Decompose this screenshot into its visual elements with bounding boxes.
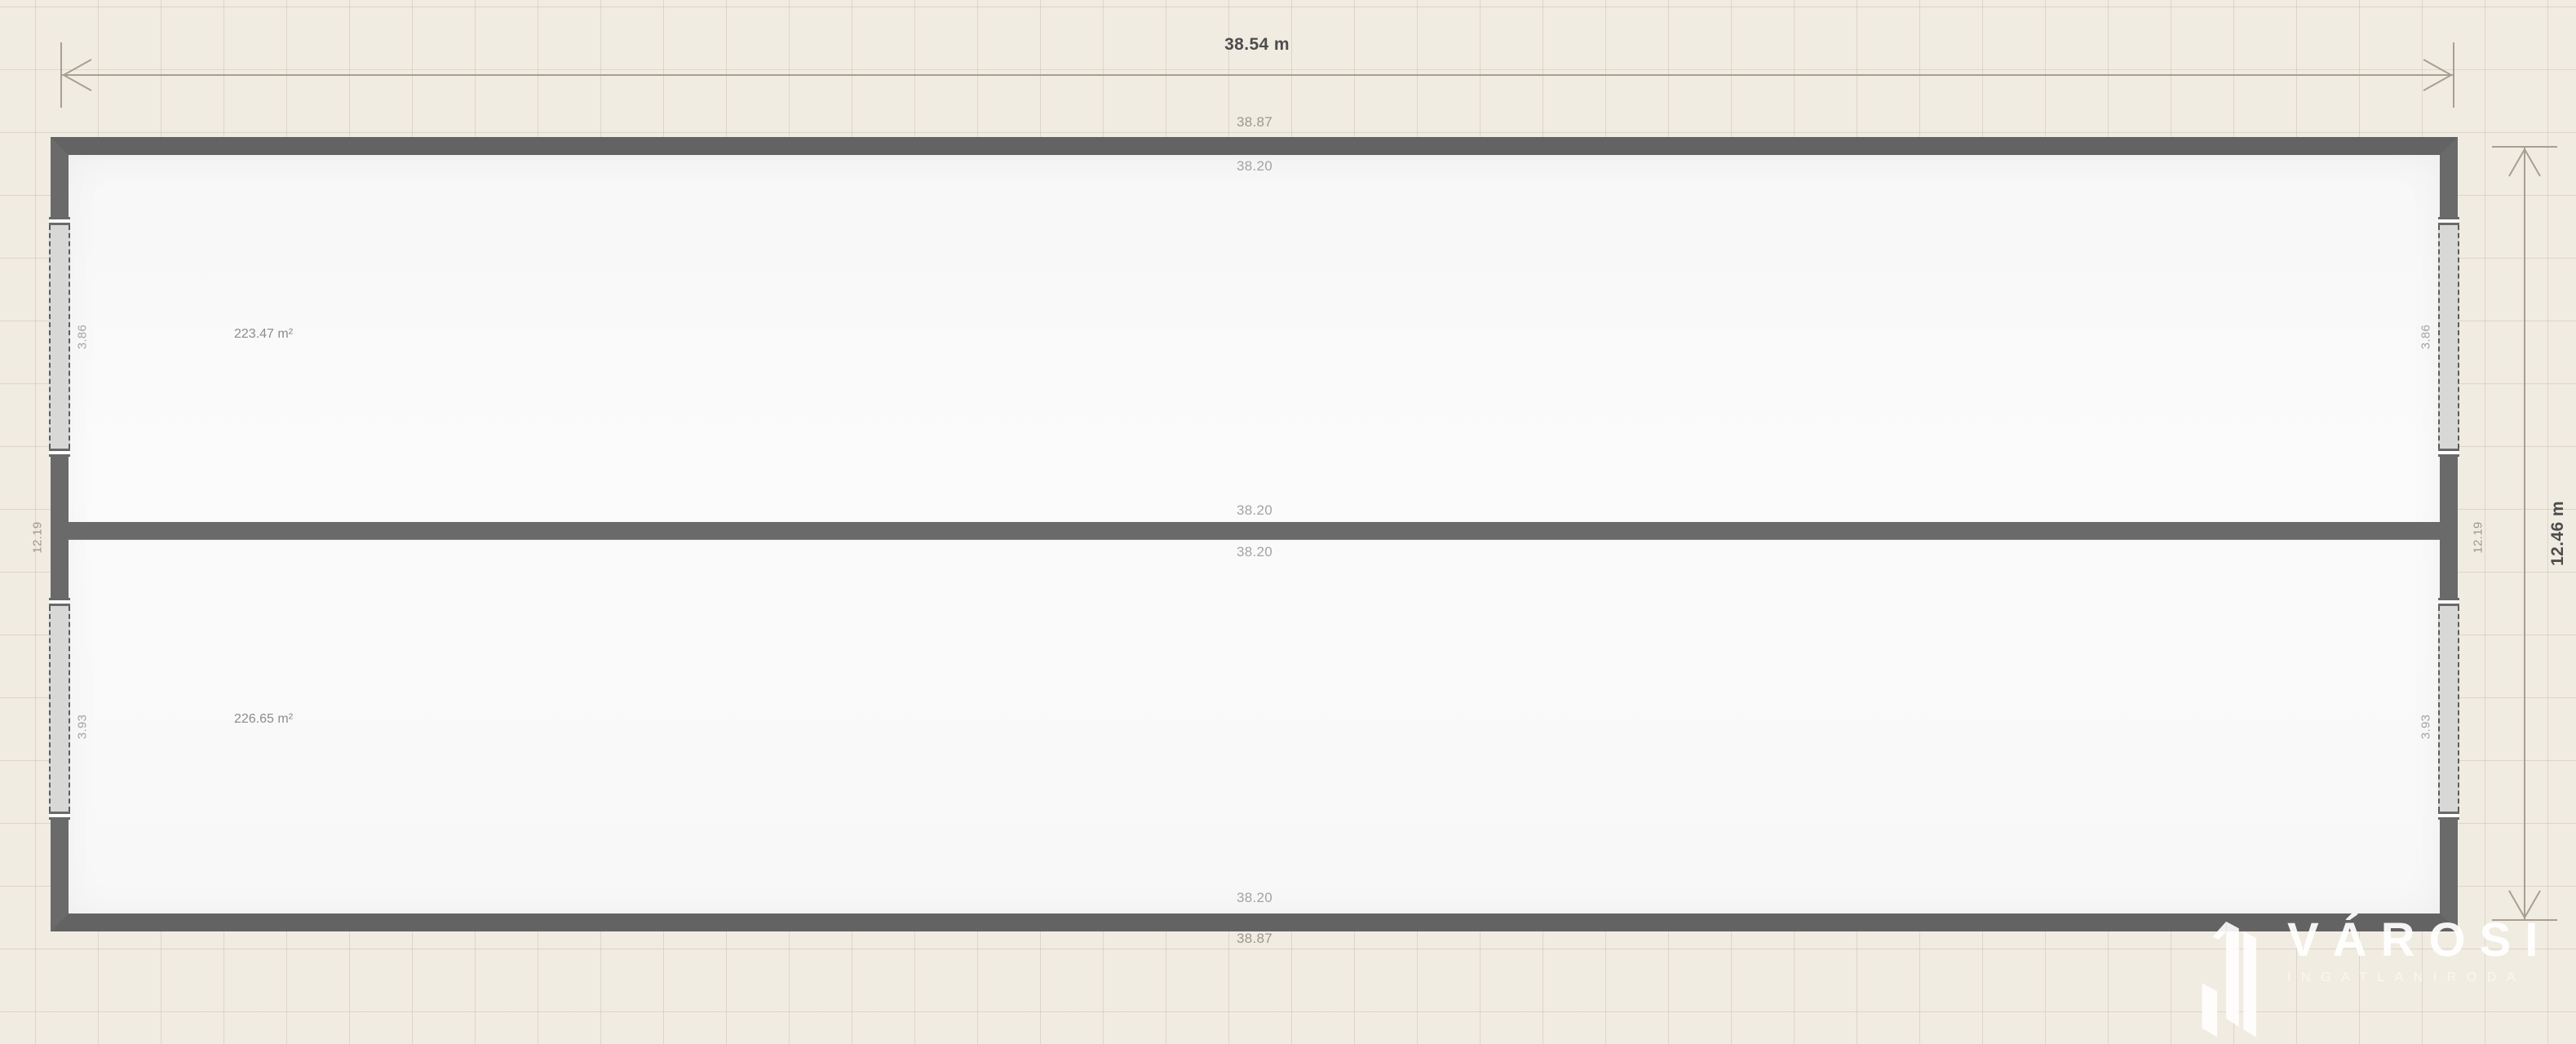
window-cap [2438, 449, 2459, 457]
window-right-bottom [2438, 598, 2459, 820]
window-cap [49, 598, 70, 606]
window-left-bottom [49, 598, 70, 820]
overall-width-label: 38.54 m [1224, 35, 1290, 55]
overall-height-label: 12.46 m [2548, 501, 2568, 566]
window-length-label: 3.93 [76, 714, 90, 739]
middle-wall [69, 522, 2440, 540]
window-cap [49, 812, 70, 820]
wall-length-label-top-outer: 38.87 [1237, 114, 1273, 130]
window-length-label: 3.86 [76, 325, 90, 349]
wall-length-label-bottom-inner: 38.20 [1237, 890, 1273, 906]
brand-tagline: INGATLANIRODA [2287, 971, 2552, 985]
room-top [137, 310, 2508, 677]
window-glass [2438, 606, 2459, 812]
window-cap [2438, 598, 2459, 606]
wall-length-label-middle-upper: 38.20 [1237, 502, 1273, 519]
wall-length-label-middle-lower: 38.20 [1237, 544, 1273, 560]
window-glass [2438, 225, 2459, 449]
building-icon [2199, 913, 2274, 1041]
window-glass [49, 606, 70, 812]
wall-length-label-top-inner: 38.20 [1237, 158, 1273, 175]
window-cap [2438, 812, 2459, 820]
window-cap [49, 217, 70, 225]
floorplan-canvas: 38.54 m 12.46 m 3.86 3.93 3.86 3.93 38.8… [0, 0, 2576, 1044]
brand-logo: VÁROSI INGATLANIRODA [2199, 913, 2558, 1044]
window-glass [49, 225, 70, 449]
wall-length-label-right: 12.19 [2472, 521, 2485, 553]
window-length-label: 3.86 [2419, 325, 2433, 349]
window-right-top [2438, 217, 2459, 457]
window-left-top [49, 217, 70, 457]
window-cap [49, 449, 70, 457]
room-area-label-bottom: 226.65 m² [234, 712, 293, 727]
brand-name: VÁROSI [2287, 915, 2552, 966]
room-bottom [137, 695, 2508, 1044]
wall-length-label-bottom-outer: 38.87 [1237, 931, 1273, 947]
window-length-label: 3.93 [2419, 714, 2433, 739]
wall-length-label-left: 12.19 [31, 521, 45, 553]
room-area-label-top: 223.47 m² [234, 327, 293, 342]
window-cap [2438, 217, 2459, 225]
